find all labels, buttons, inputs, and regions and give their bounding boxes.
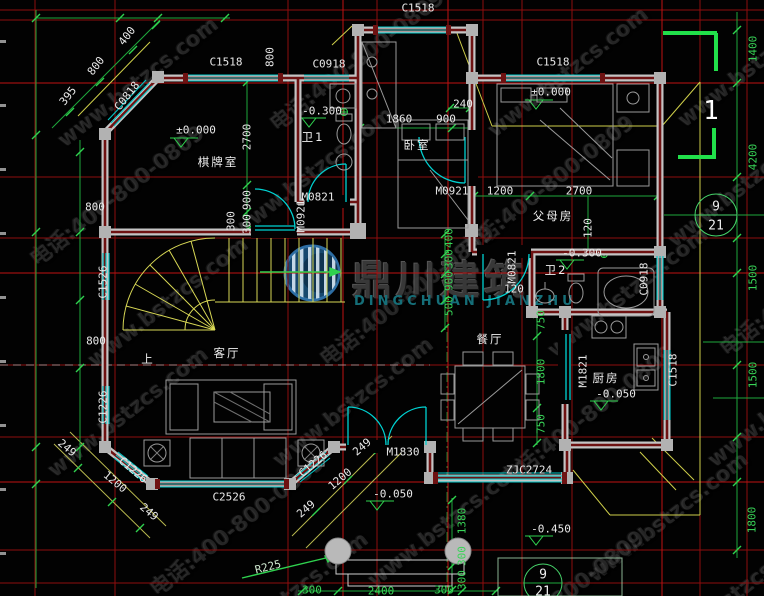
dim-bay-right-249a: 249 <box>350 436 374 459</box>
door-label-entry: M1830 <box>386 446 419 459</box>
level-chess: ±0.000 <box>176 124 216 137</box>
window-label-bay-right: C1226 <box>296 448 330 479</box>
dim-parents-120b: 120 <box>504 283 524 296</box>
window-label-corner: C0818 <box>112 79 143 113</box>
dim-parents-120a: 120 <box>582 218 595 238</box>
window-label-bay-front: C2526 <box>212 491 245 504</box>
dim-step-2400: 2400 <box>368 585 395 596</box>
dim-bed-240: 240 <box>453 98 473 111</box>
dim-right-4200: 4200 <box>747 144 760 171</box>
dim-left-800b: 800 <box>86 335 106 348</box>
labels-layer: 棋牌室 卧室 父母房 卫1 卫2 客厅 餐厅 厨房 上 C1518 C1518 … <box>0 0 764 596</box>
dim-mid-300: 300 <box>443 249 456 269</box>
level-parents: ±0.000 <box>531 86 571 99</box>
dim-dining-1800: 1800 <box>535 359 548 386</box>
level-terrace: -0.450 <box>531 523 571 536</box>
dim-step-300a: 300 <box>302 584 322 596</box>
dim-chess-300a: 300 <box>241 214 254 234</box>
level-kitchen: -0.050 <box>596 388 636 401</box>
room-label-bedroom: 卧室 <box>404 137 431 153</box>
room-label-dining: 餐厅 <box>477 331 504 347</box>
window-label-bath1-top: C0918 <box>312 58 345 71</box>
dim-left-800a: 800 <box>85 201 105 214</box>
window-label-parents-top: C1518 <box>536 56 569 69</box>
level-porch: -0.050 <box>373 488 413 501</box>
window-label-dining-combo: ZJC2724 <box>506 464 552 477</box>
level-bath1: -0.300 <box>302 105 342 118</box>
window-label-bath2-right: C0918 <box>638 262 651 295</box>
room-label-chess: 棋牌室 <box>198 154 239 170</box>
dim-mid-900: 900 <box>443 271 456 291</box>
room-label-kitchen: 厨房 <box>593 370 620 386</box>
dim-mid-500: 500 <box>443 296 456 316</box>
dim-parents-1200: 1200 <box>487 185 514 198</box>
dim-chess-2700: 2700 <box>241 124 254 151</box>
dim-diag-400: 400 <box>116 24 138 48</box>
dim-porch-300a: 300 <box>456 546 469 566</box>
door-label-bath2: M0821 <box>506 250 519 283</box>
room-label-living: 客厅 <box>214 345 241 361</box>
dim-bay-left-249b: 249 <box>137 501 161 524</box>
detail-circle-right-num: 9 <box>712 200 720 215</box>
door-label-kitchen: M1821 <box>577 354 590 387</box>
dim-bay-right-249b: 249 <box>294 498 318 521</box>
window-label-living-left-upper: C1526 <box>97 265 110 298</box>
dim-bed-1860: 1860 <box>386 113 413 126</box>
dim-mid-400: 400 <box>443 228 456 248</box>
detail-circle-right-den: 21 <box>708 219 724 234</box>
dim-porch-300b: 300 <box>456 570 469 590</box>
door-label-hall: M0921 <box>295 199 308 232</box>
dim-right-1400: 1400 <box>747 36 760 63</box>
dim-step-300b: 300 <box>434 584 454 596</box>
dim-diag-800: 800 <box>85 54 107 78</box>
room-label-bath1: 卫1 <box>302 129 325 145</box>
dim-chess-300b: 300 <box>225 211 238 231</box>
window-label-bedroom-top: C1518 <box>401 2 434 15</box>
window-label-living-left-lower: C1226 <box>97 390 110 423</box>
dim-bay-left-249a: 249 <box>55 437 79 460</box>
window-label-kitchen-right: C1518 <box>667 353 680 386</box>
dim-bay-right-1200: 1200 <box>326 466 355 493</box>
dim-dining-750a: 750 <box>535 310 548 330</box>
dim-right-1800: 1800 <box>746 507 759 534</box>
dim-right-1500a: 1500 <box>747 265 760 292</box>
dim-dining-750b: 750 <box>535 414 548 434</box>
window-label-chess-top: C1518 <box>209 56 242 69</box>
level-bath2: -0.300 <box>562 247 602 260</box>
dim-top-800: 800 <box>264 47 277 67</box>
room-label-parents: 父母房 <box>533 208 574 224</box>
stair-up-label: 上 <box>141 351 155 367</box>
dim-bed-900: 900 <box>436 113 456 126</box>
dim-radius-r225: R225 <box>254 557 283 576</box>
detail-circle-bottom-den: 21 <box>535 585 551 596</box>
dim-parents-2700: 2700 <box>566 185 593 198</box>
room-label-bath2: 卫2 <box>545 262 568 278</box>
dim-right-1500b: 1500 <box>747 362 760 389</box>
cad-floorplan-canvas: www.bstzcs.com 电话:400-800-0809 www.bstzc… <box>0 0 764 596</box>
elevation-mark-1: 1 <box>703 96 719 126</box>
dim-porch-1380: 1380 <box>456 508 469 535</box>
door-label-bedroom: M0921 <box>435 185 468 198</box>
dim-chess-900: 900 <box>241 190 254 210</box>
detail-circle-bottom-num: 9 <box>539 568 547 583</box>
dim-diag-395: 395 <box>57 84 79 108</box>
